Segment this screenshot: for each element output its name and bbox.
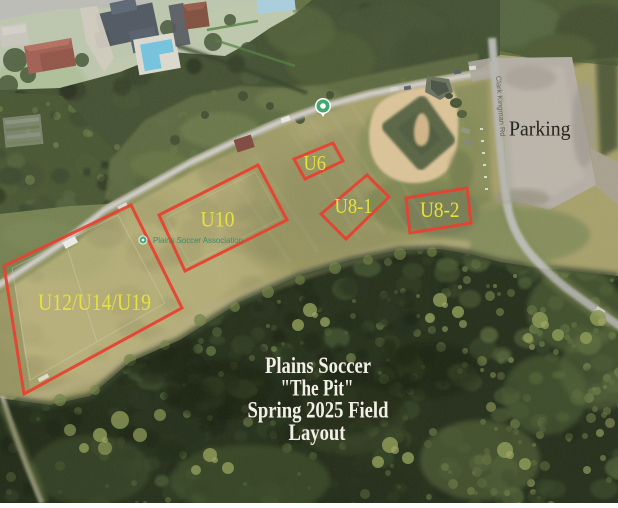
svg-text:Spring 2025 Field: Spring 2025 Field [248,398,389,423]
svg-text:U6: U6 [304,151,327,175]
svg-text:Plains Soccer Association: Plains Soccer Association [153,235,243,245]
svg-text:U8-2: U8-2 [420,197,460,222]
svg-text:U12/U14/U19: U12/U14/U19 [38,290,151,316]
svg-text:U8-1: U8-1 [335,194,373,218]
svg-text:Parking: Parking [509,117,571,141]
svg-text:Plains Soccer: Plains Soccer [265,353,371,378]
svg-text:Layout: Layout [289,420,346,445]
svg-text:U10: U10 [201,207,235,232]
